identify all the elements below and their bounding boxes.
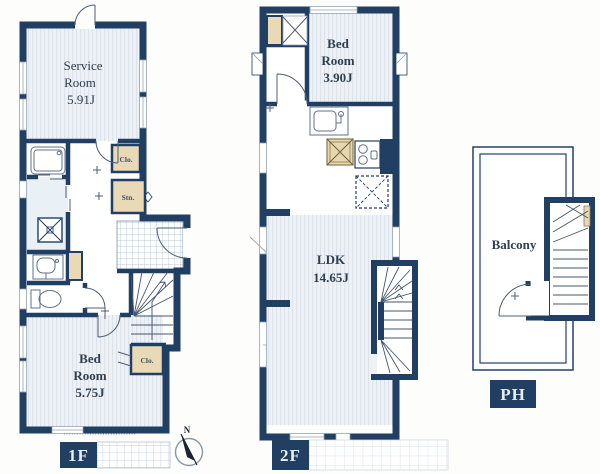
stair-door-vestibule [528, 281, 549, 317]
window [260, 322, 267, 367]
washing-machine-icon [38, 218, 62, 242]
window [393, 227, 400, 257]
bed-room-1f-name-2: Room [73, 368, 106, 383]
shelf-box [68, 252, 82, 280]
floor-plan-ph: Balcony [473, 147, 592, 370]
refrigerator-icon [356, 176, 388, 208]
bed-room-1f-area: 5.75J [75, 385, 105, 400]
ldk-area: 14.65J [313, 270, 349, 285]
bed-room-2f-name-2: Room [321, 53, 354, 68]
compass-icon: N [176, 425, 203, 466]
service-room-name-1: Service [64, 58, 103, 73]
door-opening [75, 21, 95, 29]
bed-room-2f-area: 3.90J [323, 70, 353, 85]
tag-label-ph: PH [500, 385, 526, 404]
casement-window [396, 53, 407, 75]
window [20, 289, 27, 309]
service-room-name-2: Room [64, 75, 96, 90]
door-opening [277, 101, 307, 108]
casement-window [252, 53, 263, 75]
window [336, 434, 350, 441]
closet-2f-box [267, 16, 282, 45]
bed-room-2f-name-1: Bed [327, 36, 349, 51]
closet-lower-label: Clo. [140, 356, 153, 365]
tag-label-2f: 2F [280, 446, 301, 465]
window [260, 143, 267, 173]
balcony-label: Balcony [492, 237, 537, 252]
bed-room-1f-name-1: Bed [79, 351, 101, 366]
stair-core-wall [378, 302, 384, 340]
floor-plan-2f: Bed Room 3.90J LDK 14.65J [250, 7, 415, 441]
grid-strip-2f [309, 440, 448, 470]
closet-upper-label: Clo. [119, 155, 132, 164]
window [260, 227, 267, 254]
floor-hatch-icon [327, 139, 353, 165]
wall-stub [263, 300, 290, 307]
floor-plan-1f: Clo. Stn. Clo. [20, 5, 192, 434]
storage-label: Stn. [122, 193, 135, 202]
ldk-name: LDK [317, 252, 346, 267]
window [20, 181, 27, 198]
grid-strip-1f [97, 442, 170, 468]
stair-opening [371, 354, 377, 374]
wall-stub [263, 209, 290, 216]
floorplan-page: Clo. Stn. Clo. [0, 0, 600, 474]
kitchen-side-wall [380, 139, 396, 174]
stove-icon [355, 141, 380, 168]
service-room-area: 5.91J [67, 92, 95, 107]
closet-2f [267, 16, 307, 45]
compass-north-label: N [184, 425, 191, 435]
floorplan-canvas: Clo. Stn. Clo. [0, 0, 600, 474]
door-opening [183, 228, 191, 258]
tag-label-1f: 1F [68, 446, 89, 465]
